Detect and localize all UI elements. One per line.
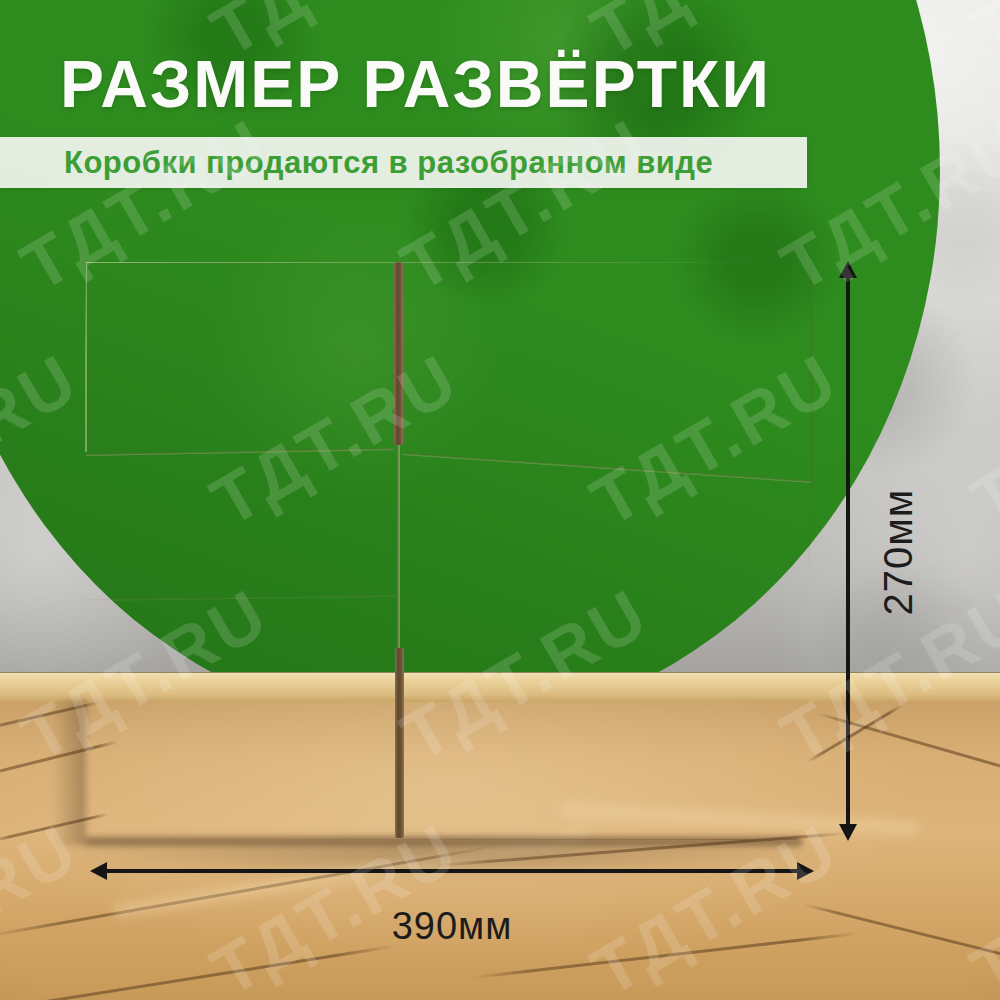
height-dimension-label: 270мм <box>878 472 918 632</box>
floor-plank-line <box>803 903 1000 964</box>
arrow-down-icon <box>839 824 857 841</box>
flattened-cardboard-box <box>78 258 818 842</box>
box-fold-crease-left-lower <box>86 595 396 601</box>
vertical-dimension-line <box>846 273 850 829</box>
product-photo-scene: 270мм 390мм Коробки продаются в разобран… <box>0 0 1000 1000</box>
floor-plank-line <box>0 944 398 1000</box>
height-dimension-arrow <box>838 261 858 841</box>
subtitle-text: Коробки продаются в разобранном виде <box>0 145 713 181</box>
box-center-slit-top <box>394 262 403 445</box>
box-fold-crease-right <box>403 453 811 483</box>
width-dimension-arrow <box>90 861 814 881</box>
box-center-slit-bottom <box>395 648 404 838</box>
horizontal-dimension-line <box>102 869 802 873</box>
width-dimension-label: 390мм <box>352 906 552 946</box>
box-side-shadow <box>52 700 86 845</box>
box-fold-crease-left <box>86 448 394 456</box>
page-title: РАЗМЕР РАЗВЁРТКИ <box>60 53 771 115</box>
box-center-seam <box>397 445 400 649</box>
subtitle-banner: Коробки продаются в разобранном виде <box>0 137 807 188</box>
arrow-right-icon <box>797 862 814 880</box>
